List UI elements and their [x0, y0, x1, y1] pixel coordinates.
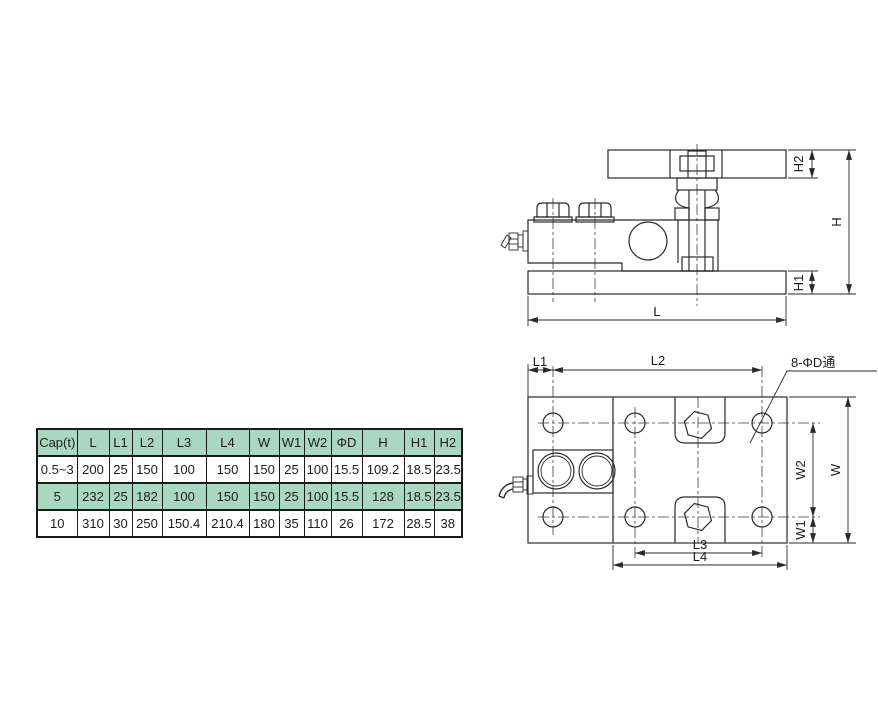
- drawing-sheet: H2 H H1 L: [0, 0, 878, 711]
- spec-cell: 15.5: [331, 483, 362, 510]
- shear-beam-hole: [629, 222, 667, 260]
- bolt-head: [538, 453, 574, 489]
- load-cell-top-view: [533, 450, 615, 493]
- spec-cell: 150: [132, 456, 162, 483]
- spec-cell: 38: [434, 510, 462, 537]
- spec-cell: 26: [331, 510, 362, 537]
- side-view: H2 H H1 L: [501, 144, 856, 326]
- dim-label-w1: W1: [793, 520, 808, 540]
- side-view-dimensions: H2 H H1 L: [528, 150, 856, 326]
- spec-cell: 210.4: [206, 510, 249, 537]
- spec-cell: 180: [249, 510, 279, 537]
- spec-cell: 0.5~3: [37, 456, 77, 483]
- spec-cell: 128: [362, 483, 404, 510]
- bottom-plate: [528, 271, 786, 294]
- spec-cell: 250: [132, 510, 162, 537]
- dim-label-l4: L4: [693, 549, 707, 564]
- spec-cell: 200: [77, 456, 109, 483]
- spec-table-head-row: Cap(t)LL1L2L3L4WW1W2ΦDHH1H2: [37, 429, 462, 456]
- spec-table-row: 0.5~3200251501001501502510015.5109.218.5…: [37, 456, 462, 483]
- spec-table-row: 1031030250150.4210.4180351102617228.538: [37, 510, 462, 537]
- spec-cell: 35: [279, 510, 304, 537]
- spec-col-header: W: [249, 429, 279, 456]
- dim-label-l1: L1: [533, 354, 547, 369]
- bolt-head: [579, 453, 615, 489]
- spec-table: Cap(t)LL1L2L3L4WW1W2ΦDHH1H2 0.5~32002515…: [36, 428, 463, 538]
- spec-cell: 150.4: [162, 510, 206, 537]
- dim-label-h: H: [829, 217, 844, 226]
- spec-cell: 150: [206, 483, 249, 510]
- dim-label-h2: H2: [791, 156, 806, 173]
- spec-col-header: W1: [279, 429, 304, 456]
- spec-cell: 150: [249, 456, 279, 483]
- dim-label-l2: L2: [651, 353, 665, 368]
- spec-cell: 23.5: [434, 456, 462, 483]
- dim-label-h1: H1: [791, 275, 806, 292]
- spec-cell: 25: [109, 456, 132, 483]
- spec-col-header: L3: [162, 429, 206, 456]
- spec-cell: 25: [279, 483, 304, 510]
- holes-callout-label: 8-ΦD通: [791, 355, 835, 370]
- cable-gland: [501, 231, 528, 251]
- spec-col-header: L2: [132, 429, 162, 456]
- spec-col-header: H2: [434, 429, 462, 456]
- spec-col-header: L1: [109, 429, 132, 456]
- technical-drawing: H2 H H1 L: [0, 0, 878, 711]
- spec-col-header: H1: [404, 429, 434, 456]
- dim-label-w: W: [828, 463, 843, 476]
- spec-col-header: W2: [304, 429, 331, 456]
- spec-cell: 18.5: [404, 456, 434, 483]
- lower-nut: [682, 257, 713, 271]
- bolt-pocket: [675, 397, 725, 443]
- base-plate-outline: [528, 397, 787, 543]
- spec-cell: 310: [77, 510, 109, 537]
- spec-cell: 150: [206, 456, 249, 483]
- spec-cell: 232: [77, 483, 109, 510]
- spec-cell: 182: [132, 483, 162, 510]
- spec-cell: 110: [304, 510, 331, 537]
- spec-col-header: Cap(t): [37, 429, 77, 456]
- spec-cell: 100: [304, 483, 331, 510]
- spec-cell: 100: [304, 456, 331, 483]
- spec-cell: 172: [362, 510, 404, 537]
- spec-cell: 23.5: [434, 483, 462, 510]
- dim-label-l: L: [653, 304, 660, 319]
- dim-label-w2: W2: [793, 460, 808, 480]
- spec-col-header: H: [362, 429, 404, 456]
- spec-cell: 100: [162, 483, 206, 510]
- spec-col-header: ΦD: [331, 429, 362, 456]
- spec-cell: 109.2: [362, 456, 404, 483]
- spec-cell: 150: [249, 483, 279, 510]
- spec-cell: 10: [37, 510, 77, 537]
- spec-cell: 28.5: [404, 510, 434, 537]
- spec-col-header: L4: [206, 429, 249, 456]
- spec-cell: 18.5: [404, 483, 434, 510]
- spec-table-row: 5232251821001501502510015.512818.523.5: [37, 483, 462, 510]
- leader-line: [750, 371, 787, 443]
- spec-cell: 15.5: [331, 456, 362, 483]
- plan-view: L1 L2 8-ΦD通 W2 W W1 L3 L4: [499, 353, 877, 570]
- plan-view-dimensions: L1 L2 8-ΦD通 W2 W W1 L3 L4: [528, 353, 877, 570]
- spec-col-header: L: [77, 429, 109, 456]
- spec-cell: 30: [109, 510, 132, 537]
- spec-cell: 25: [109, 483, 132, 510]
- spec-cell: 100: [162, 456, 206, 483]
- spec-cell: 25: [279, 456, 304, 483]
- spec-cell: 5: [37, 483, 77, 510]
